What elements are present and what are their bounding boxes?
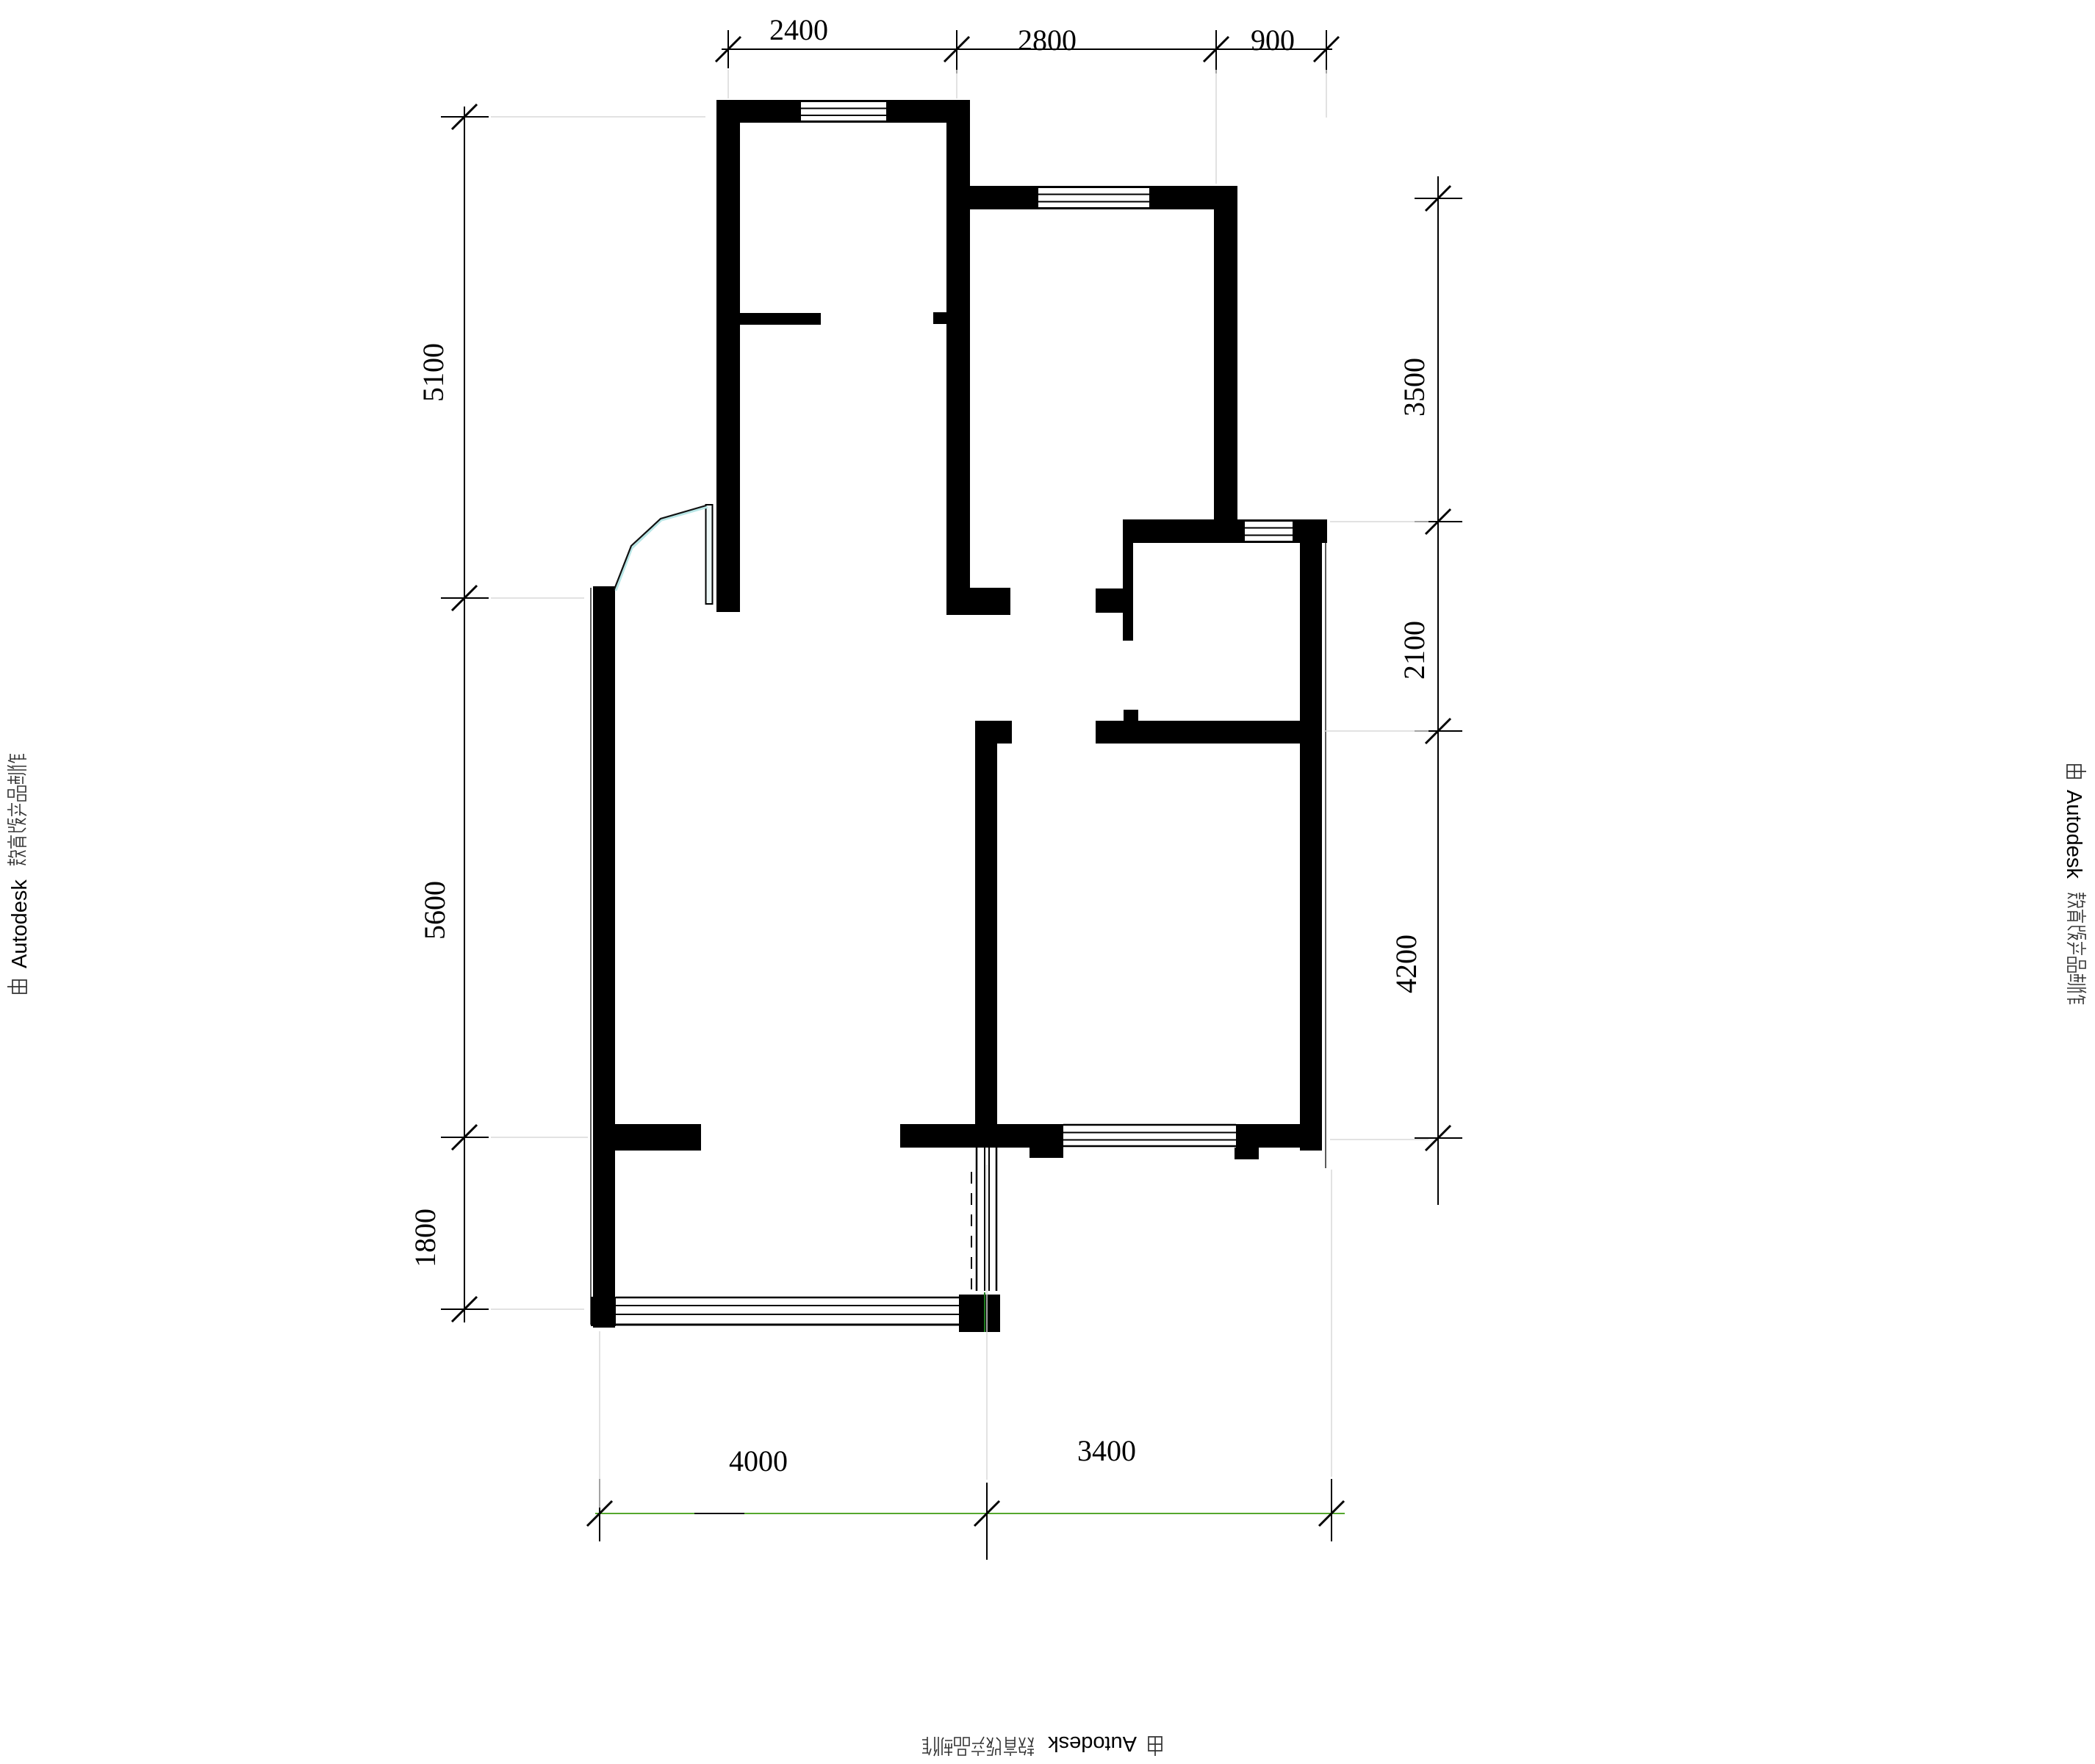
svg-text:5600: 5600 xyxy=(418,881,451,940)
svg-text:2400: 2400 xyxy=(769,13,828,46)
svg-text:3500: 3500 xyxy=(1398,358,1431,417)
svg-text:2800: 2800 xyxy=(1018,24,1077,57)
svg-text:4000: 4000 xyxy=(729,1444,788,1477)
svg-text:3400: 3400 xyxy=(1077,1434,1136,1467)
svg-text:1800: 1800 xyxy=(409,1209,442,1267)
svg-text:4200: 4200 xyxy=(1390,935,1423,993)
svg-text:5100: 5100 xyxy=(417,343,450,402)
svg-text:900: 900 xyxy=(1251,24,1295,57)
svg-text:2100: 2100 xyxy=(1398,621,1431,680)
